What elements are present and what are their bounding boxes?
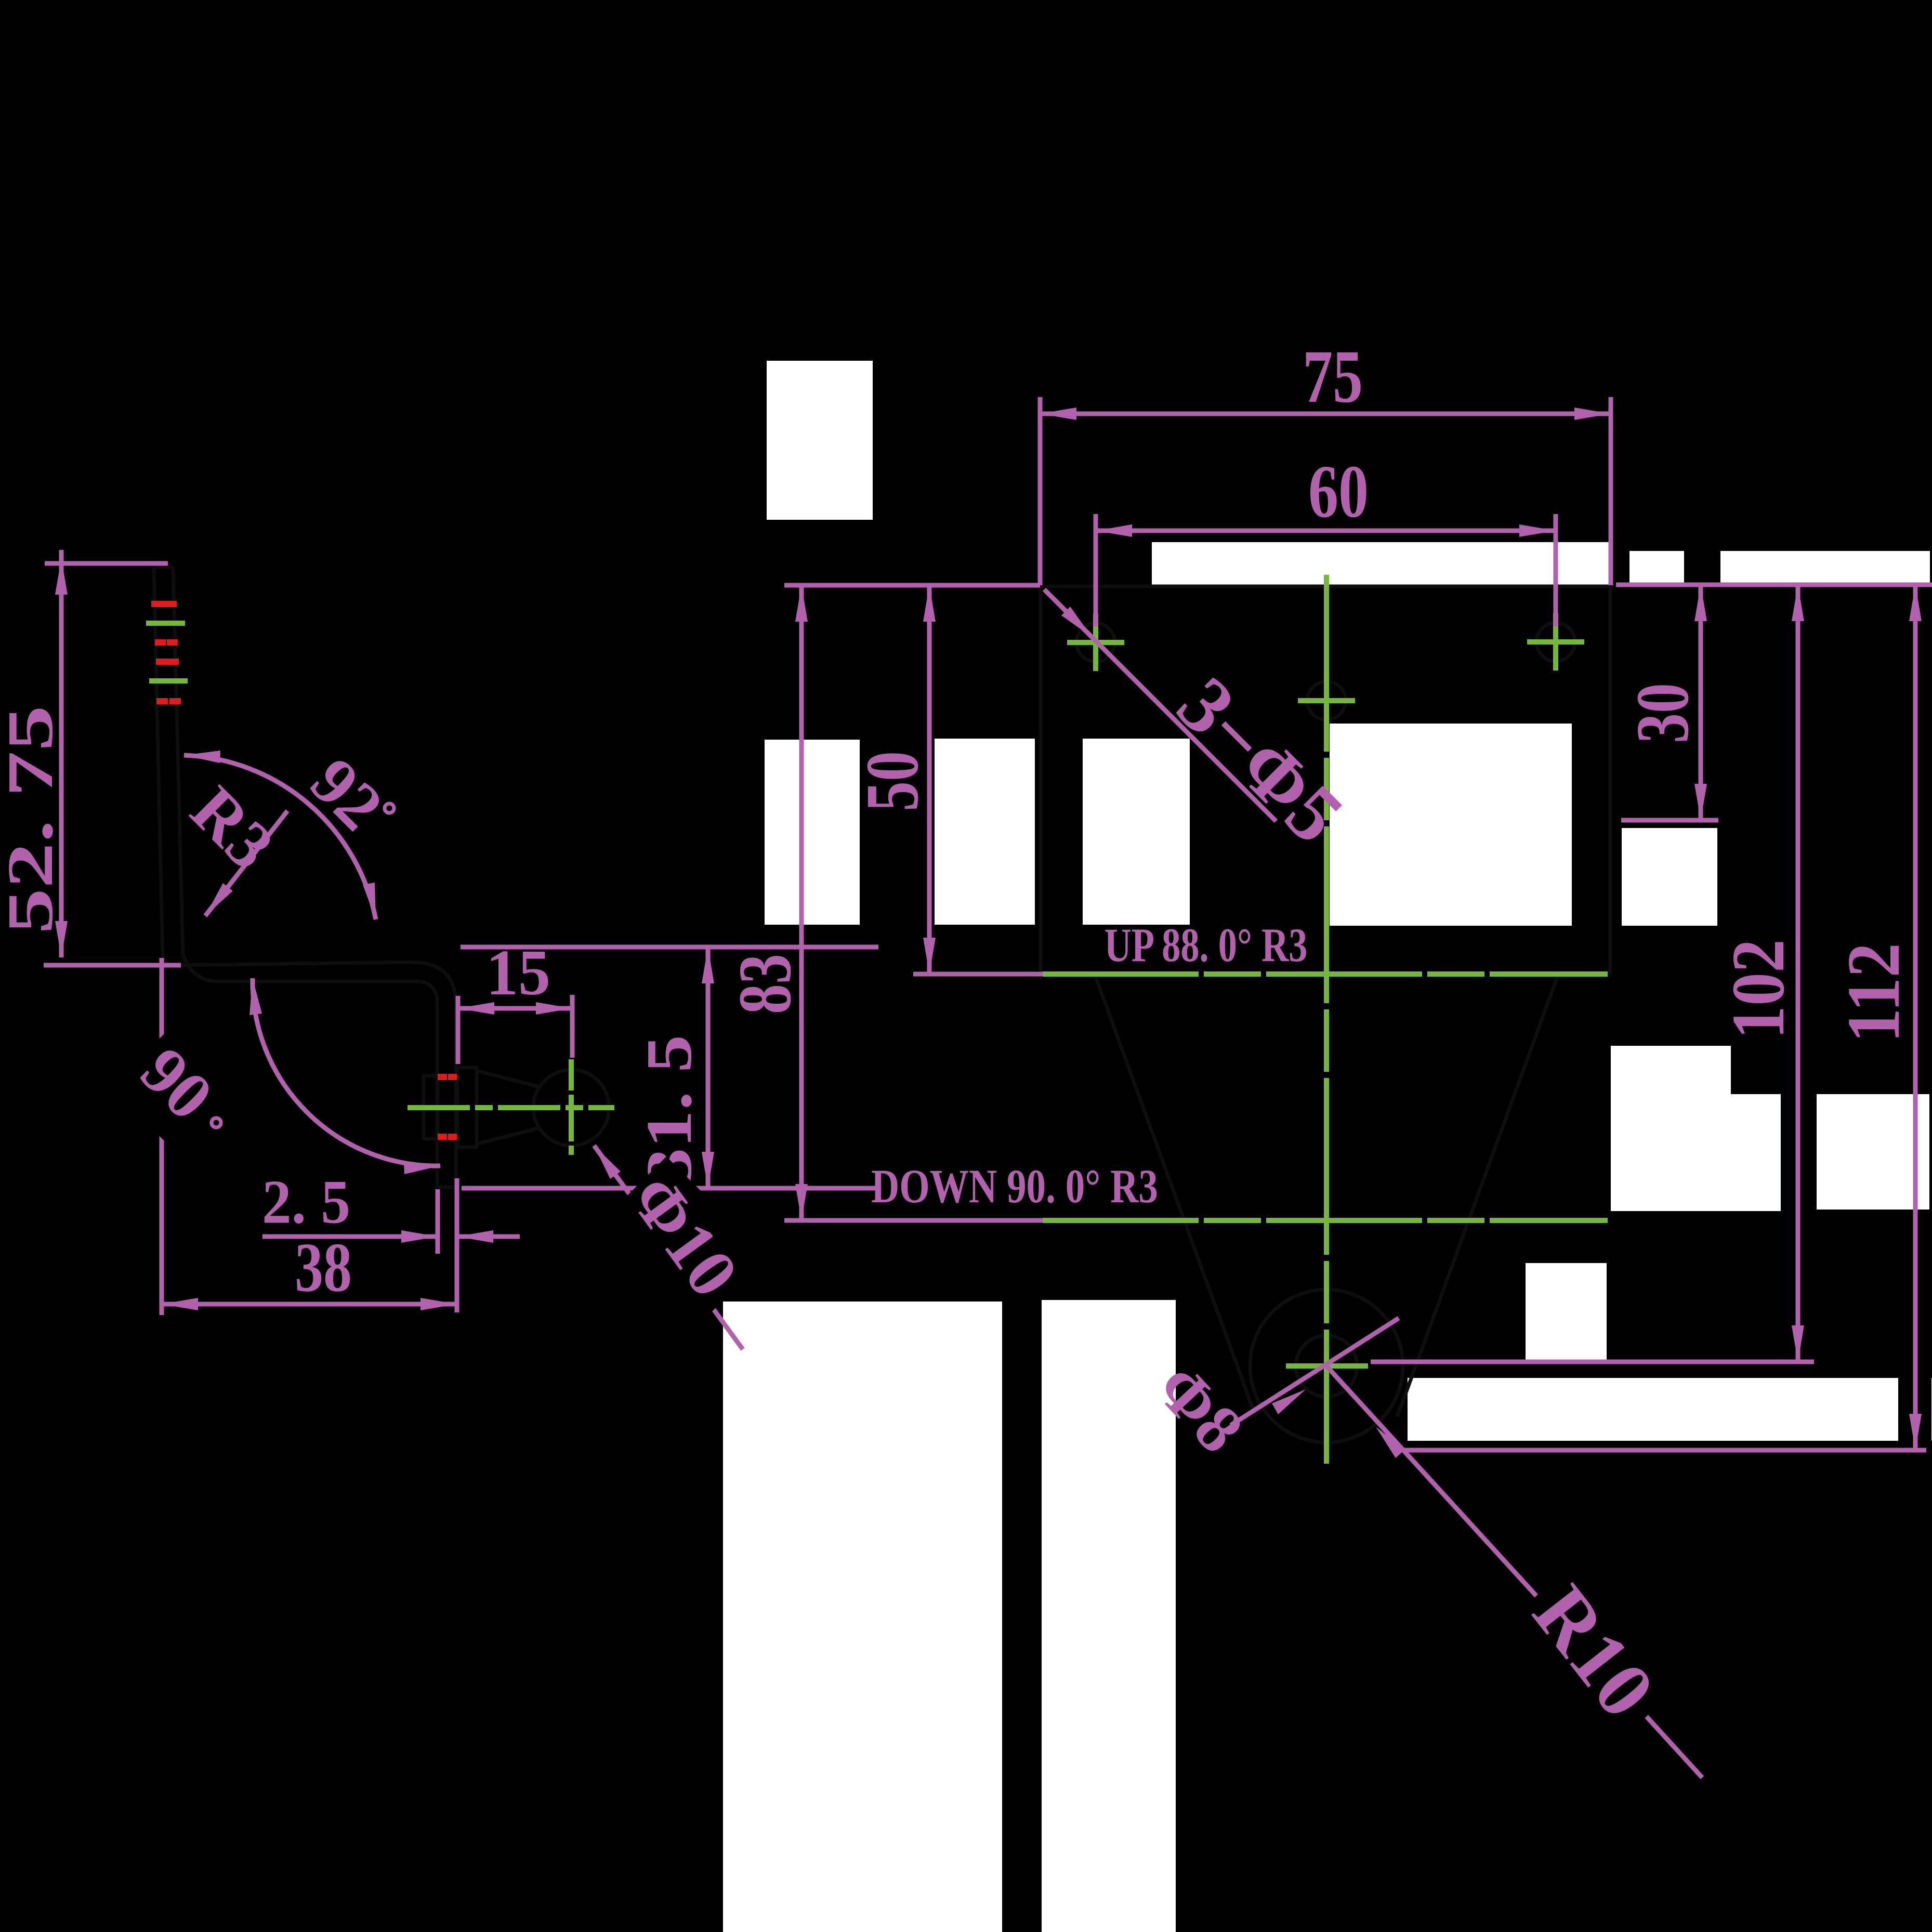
svg-text:60: 60	[1308, 450, 1369, 533]
svg-text:38: 38	[295, 1229, 352, 1307]
svg-text:DOWN 90. 0° R3: DOWN 90. 0° R3	[871, 1160, 1158, 1213]
svg-text:83: 83	[724, 954, 807, 1014]
svg-text:52. 75: 52. 75	[0, 705, 67, 934]
svg-text:30: 30	[1621, 683, 1704, 743]
svg-text:75: 75	[1303, 335, 1363, 418]
svg-text:112: 112	[1832, 943, 1915, 1043]
svg-text:102: 102	[1717, 939, 1800, 1039]
svg-text:50: 50	[851, 751, 934, 811]
svg-text:UP 88. 0° R3: UP 88. 0° R3	[1105, 918, 1308, 971]
svg-text:2. 5: 2. 5	[262, 1167, 350, 1237]
